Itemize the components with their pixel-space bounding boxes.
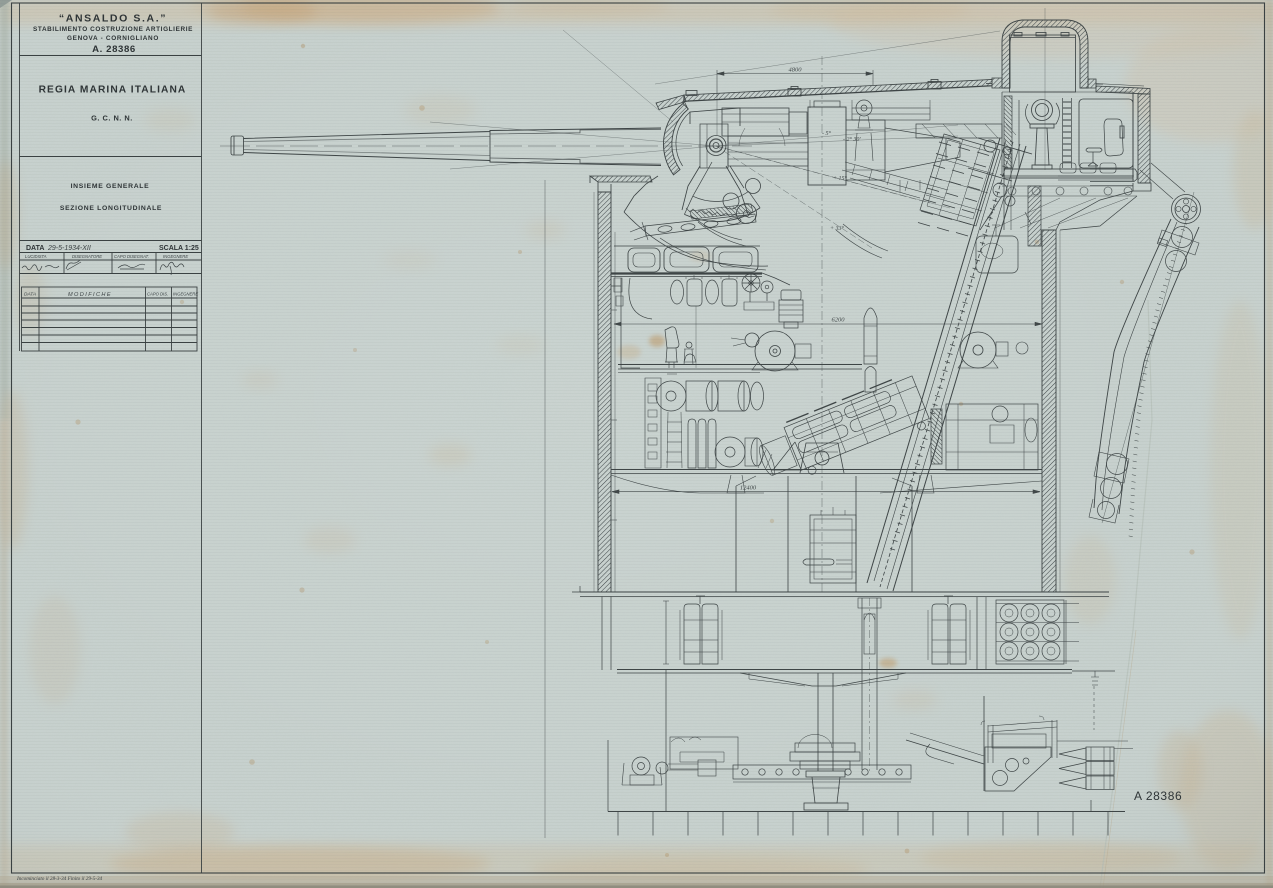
- svg-text:GENOVA - CORNIGLIANO: GENOVA - CORNIGLIANO: [67, 35, 159, 42]
- svg-text:Incominciato il 28-3-34 Finito: Incominciato il 28-3-34 Finito il 29-5-3…: [16, 875, 103, 882]
- svg-text:- 2° 30': - 2° 30': [843, 136, 861, 143]
- svg-text:G. C. N. N.: G. C. N. N.: [91, 114, 133, 123]
- svg-text:REGIA MARINA ITALIANA: REGIA MARINA ITALIANA: [39, 85, 187, 96]
- svg-text:DISEGNATORE: DISEGNATORE: [72, 254, 102, 259]
- svg-text:INGEGNERE: INGEGNERE: [163, 254, 188, 259]
- svg-text:+ 33°: + 33°: [830, 225, 845, 232]
- svg-text:“ANSALDO S.A.”: “ANSALDO S.A.”: [59, 13, 167, 25]
- svg-text:CAPO DIS.: CAPO DIS.: [147, 292, 168, 297]
- svg-text:DATA: DATA: [24, 292, 36, 298]
- svg-text:12400: 12400: [740, 485, 757, 492]
- svg-text:INSIEME GENERALE: INSIEME GENERALE: [71, 183, 150, 190]
- svg-text:MODIFICHE: MODIFICHE: [68, 292, 112, 298]
- svg-text:4800: 4800: [789, 67, 803, 74]
- svg-text:DATA: DATA: [26, 245, 44, 252]
- svg-text:29-5-1934-XII: 29-5-1934-XII: [47, 245, 91, 252]
- svg-text:+ 15°: + 15°: [833, 175, 848, 182]
- svg-text:A. 28386: A. 28386: [92, 44, 136, 55]
- svg-text:6200: 6200: [832, 317, 846, 324]
- svg-text:INGEGNERE: INGEGNERE: [173, 292, 198, 297]
- svg-text:LUCIDISTA: LUCIDISTA: [25, 254, 47, 259]
- svg-text:SEZIONE LONGITUDINALE: SEZIONE LONGITUDINALE: [60, 205, 162, 212]
- svg-text:SCALA 1:25: SCALA 1:25: [159, 245, 199, 252]
- svg-text:STABILIMENTO COSTRUZIONE ARTIG: STABILIMENTO COSTRUZIONE ARTIGLIERIE: [33, 26, 193, 33]
- svg-text:- 5°: - 5°: [822, 130, 831, 137]
- svg-text:CAPO DISEGNAT.: CAPO DISEGNAT.: [114, 254, 149, 259]
- svg-text:A 28386: A 28386: [1134, 789, 1182, 803]
